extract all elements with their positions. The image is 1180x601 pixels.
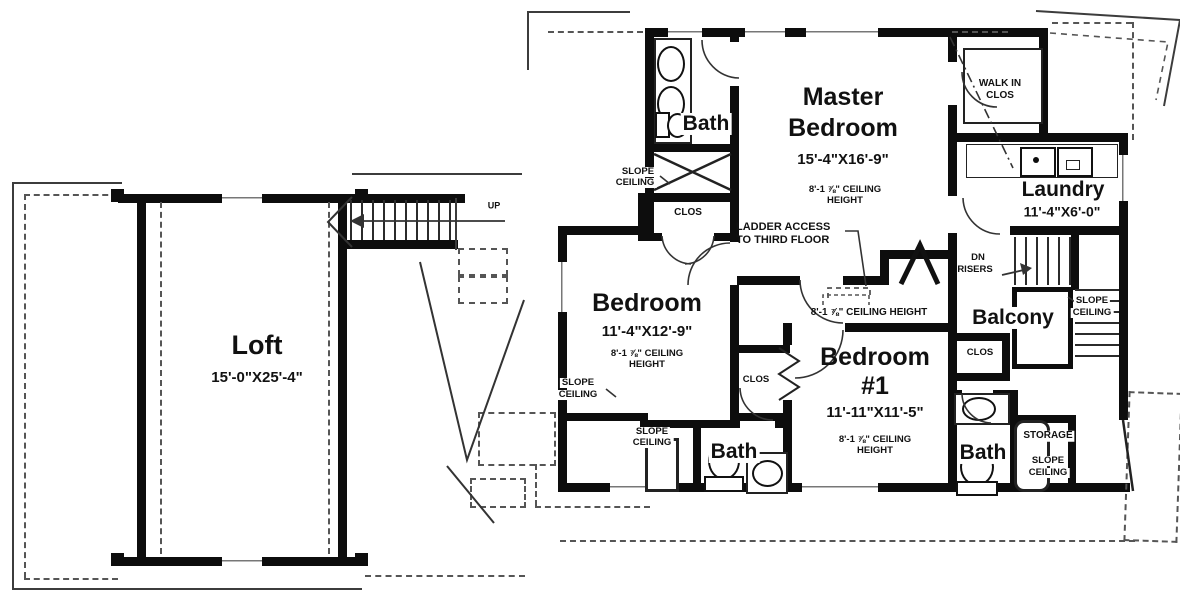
- ladder-access-note: LADDER ACCESS: [736, 222, 830, 234]
- roof-overhang-dashed: [24, 194, 118, 196]
- window: [222, 557, 262, 566]
- room-label-bath-right: Bath: [958, 442, 1009, 464]
- shower-x-mark: [654, 154, 731, 190]
- ceiling-note-bedroom1: 8'-1 ⅞" CEILING: [839, 435, 911, 445]
- wall: [693, 420, 701, 492]
- wall: [948, 373, 1010, 381]
- ceiling-ref-dashed: [823, 295, 869, 305]
- room-label-laundry: Laundry: [1022, 179, 1105, 201]
- room-label-loft: Loft: [232, 331, 283, 359]
- room-dims-master: 15'-4"X16'-9": [797, 152, 888, 168]
- ceiling-note-master: 8'-1 ⅞" CEILING: [809, 185, 881, 195]
- toilet-tank-icon: [704, 476, 744, 492]
- wall: [775, 420, 790, 428]
- stair-treads-up: [350, 200, 455, 242]
- post: [111, 553, 124, 566]
- wall: [948, 233, 957, 492]
- eave-corner-bracket: [528, 12, 630, 70]
- wall: [880, 250, 889, 285]
- ceiling-note-bedroom1: HEIGHT: [857, 446, 893, 456]
- room-label-bedroom: Bedroom: [592, 290, 702, 316]
- room-dims-bedroom: 11'-4"X12'-9": [602, 324, 693, 340]
- wall: [137, 194, 146, 566]
- sink-icon: [962, 397, 996, 421]
- wall: [948, 133, 1128, 142]
- dryer-door: [1066, 160, 1080, 170]
- closet-label: CLOS: [674, 208, 702, 219]
- attic-dashed-box: [470, 478, 526, 508]
- room-label-walkin-clos: WALK IN: [979, 79, 1021, 90]
- window: [806, 28, 878, 37]
- door-arc: [688, 243, 730, 285]
- room-label-bedroom1: #1: [861, 373, 889, 399]
- roof-overhang-dashed: [1050, 33, 1168, 100]
- ceiling-note-bedroom: 8'-1 ⅞" CEILING: [611, 349, 683, 359]
- eave-corner-bracket: [1036, 11, 1180, 106]
- room-label-bath-top: Bath: [681, 113, 732, 135]
- door-arc: [702, 40, 739, 78]
- slope-ceiling-note: CEILING: [1071, 308, 1114, 318]
- closet-label: CLOS: [741, 375, 771, 385]
- wall: [948, 333, 1010, 341]
- slope-ceiling-note: CEILING: [631, 438, 674, 448]
- slope-leader: [606, 389, 616, 397]
- roof-overhang-dashed: [535, 506, 650, 508]
- wall: [1071, 226, 1079, 290]
- slope-ceiling-note: CEILING: [614, 178, 657, 188]
- slope-ceiling-note: SLOPE: [1030, 456, 1066, 466]
- bifold-door-zigzag: [779, 348, 799, 400]
- room-label-bedroom1: Bedroom: [820, 344, 930, 370]
- wall: [889, 250, 955, 259]
- wall: [845, 323, 955, 332]
- wall: [948, 28, 957, 62]
- stair-treads-down: [1014, 237, 1071, 285]
- room-label-master: Master: [803, 84, 884, 110]
- window: [1119, 155, 1128, 201]
- wall: [730, 345, 790, 353]
- window: [222, 194, 262, 203]
- window: [802, 483, 878, 492]
- roof-overhang-dashed: [24, 194, 26, 578]
- eave-line: [352, 173, 522, 175]
- wall: [1010, 226, 1128, 235]
- wall: [737, 276, 800, 285]
- room-label-balcony: Balcony: [970, 307, 1056, 329]
- dn-risers-note: RISERS: [957, 265, 992, 275]
- window: [745, 28, 785, 37]
- ceiling-note-master: HEIGHT: [827, 196, 863, 206]
- slope-leader: [660, 176, 670, 184]
- toilet-tank-icon: [956, 481, 998, 496]
- ceiling-break-dashed: [160, 202, 162, 554]
- slope-ceiling-note: SLOPE: [620, 167, 656, 177]
- room-label-storage: STORAGE: [1021, 431, 1074, 442]
- slope-ceiling-note: SLOPE: [560, 378, 596, 388]
- eave-line: [12, 182, 122, 184]
- slope-ceiling-note: CEILING: [557, 390, 600, 400]
- wall: [338, 240, 458, 249]
- wall: [1119, 226, 1128, 420]
- roof-overhang-dashed: [548, 31, 643, 33]
- wall: [1002, 333, 1010, 373]
- wall: [558, 413, 648, 421]
- window: [668, 28, 702, 37]
- attic-dashed-box: [458, 276, 508, 304]
- dn-risers-note: DN: [971, 253, 985, 263]
- roof-overhang-dashed: [535, 464, 537, 506]
- attic-dashed-box: [478, 412, 556, 466]
- room-dims-loft: 15'-0"X25'-4": [211, 370, 302, 386]
- room-label-bath-bottom: Bath: [709, 441, 760, 463]
- wall: [558, 226, 650, 235]
- attic-dashed-box: [458, 248, 508, 276]
- wall: [730, 86, 739, 242]
- sink-icon: [752, 460, 783, 487]
- room-dims-laundry: 11'-4"X6'-0": [1024, 205, 1101, 220]
- room-label-walkin-clos: CLOS: [986, 91, 1014, 102]
- roof-overhang-dashed: [365, 575, 525, 577]
- window: [558, 262, 567, 312]
- door-arc: [662, 236, 691, 264]
- second-floor-plan: Loft 15'-0"X25'-4" Master Bedroom 15'-4"…: [0, 0, 1180, 601]
- washer-knob: [1033, 157, 1039, 163]
- roof-overhang-dashed: [24, 578, 118, 580]
- ladder-access-note: TO THIRD FLOOR: [736, 235, 829, 247]
- stair-edge: [455, 198, 457, 250]
- roof-overhang-dashed: [1132, 22, 1134, 140]
- wall: [638, 193, 739, 202]
- ceiling-note-hall: 8'-1 ⅞" CEILING HEIGHT: [811, 308, 928, 319]
- eave-line: [12, 182, 14, 590]
- door-arc: [685, 236, 714, 264]
- roof-overhang-dashed-box: [1123, 391, 1180, 543]
- slope-ceiling-note: SLOPE: [1074, 296, 1110, 306]
- wall: [1068, 415, 1076, 492]
- door-arc: [963, 198, 1000, 234]
- wall: [730, 28, 739, 42]
- up-label: UP: [488, 201, 501, 210]
- wall: [338, 194, 347, 566]
- ladder-hatch-dashed: [828, 288, 870, 298]
- slope-ceiling-note: CEILING: [1027, 468, 1070, 478]
- roof-overhang-dashed: [560, 540, 1135, 542]
- eave-line: [12, 588, 362, 590]
- wall: [645, 28, 654, 233]
- ceiling-note-bedroom: HEIGHT: [629, 360, 665, 370]
- post: [111, 189, 124, 202]
- room-dims-bedroom1: 11'-11"X11'-5": [826, 405, 923, 421]
- wall: [948, 105, 957, 140]
- sink-icon: [657, 46, 685, 82]
- slope-ceiling-note: SLOPE: [634, 427, 670, 437]
- post: [355, 553, 368, 566]
- roof-overhang-dashed: [952, 31, 1008, 33]
- ceiling-break-dashed: [328, 202, 330, 554]
- window: [610, 483, 650, 492]
- roof-overhang-dashed: [1052, 22, 1132, 24]
- closet-label: CLOS: [967, 348, 993, 358]
- room-label-master: Bedroom: [788, 115, 898, 141]
- wall: [783, 323, 792, 345]
- wall: [645, 144, 739, 152]
- wall: [948, 140, 957, 196]
